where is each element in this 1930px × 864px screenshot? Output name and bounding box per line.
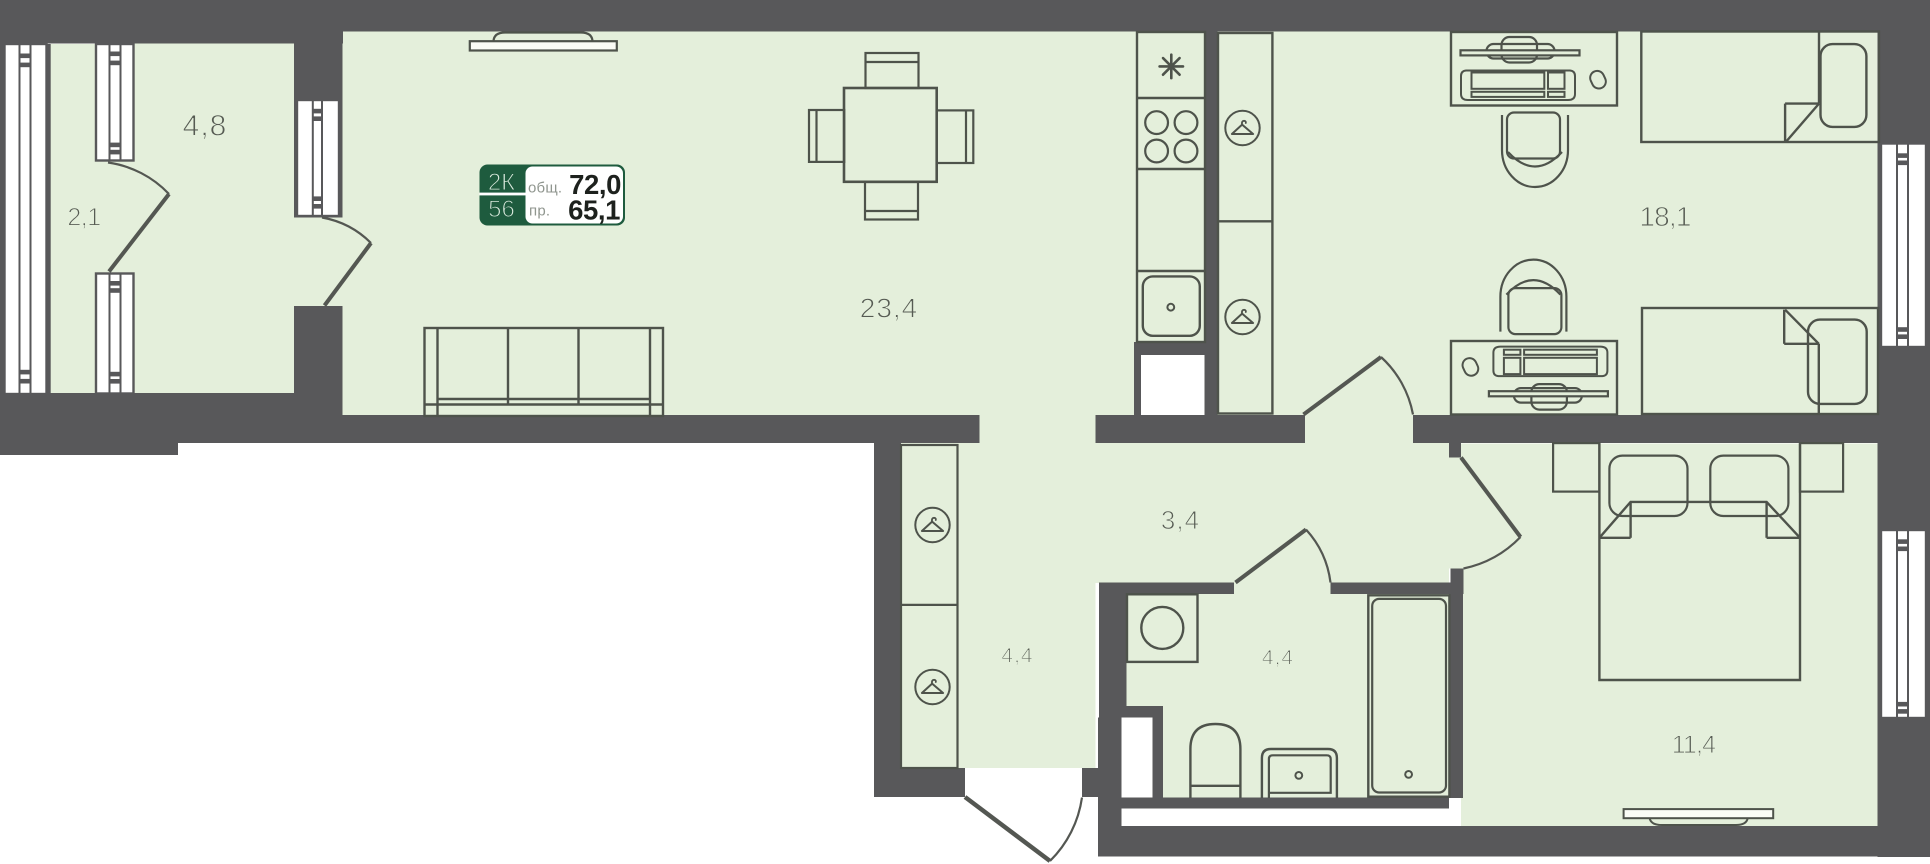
svg-text:2К: 2К xyxy=(488,169,515,196)
svg-text:пр.: пр. xyxy=(529,203,550,220)
svg-text:65,1: 65,1 xyxy=(568,195,620,226)
svg-text:23,4: 23,4 xyxy=(860,293,919,324)
svg-text:56: 56 xyxy=(488,196,515,223)
svg-text:4,4: 4,4 xyxy=(1001,645,1033,668)
svg-text:2,1: 2,1 xyxy=(67,204,100,232)
svg-text:4,4: 4,4 xyxy=(1262,647,1294,670)
svg-text:11,4: 11,4 xyxy=(1672,731,1716,759)
svg-text:3,4: 3,4 xyxy=(1161,505,1200,535)
svg-text:18,1: 18,1 xyxy=(1639,201,1691,232)
svg-text:общ.: общ. xyxy=(528,180,562,197)
svg-text:4,8: 4,8 xyxy=(183,110,228,143)
